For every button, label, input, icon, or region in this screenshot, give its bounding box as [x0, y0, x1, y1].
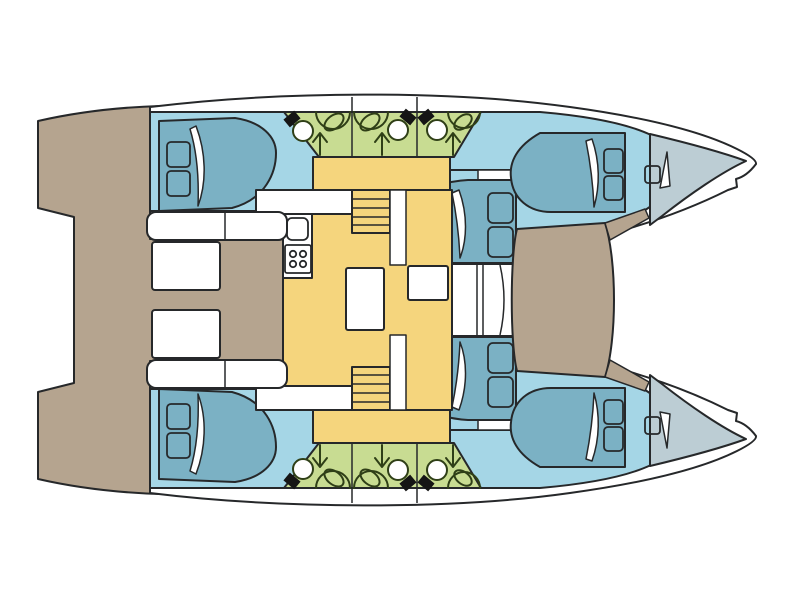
stairs-top-box [352, 190, 390, 233]
stairs-bottom [352, 367, 390, 410]
forward-bulkhead-box [452, 264, 517, 336]
saloon-floor-neck-bottom [313, 410, 450, 443]
cockpit-bench-top [147, 212, 287, 240]
toilet-icon [293, 121, 313, 141]
foredeck-pad [512, 223, 614, 377]
galley-counter-bottom [256, 386, 357, 410]
toilet-icon [388, 120, 408, 140]
nav-seat [408, 266, 448, 300]
toilet-icon [427, 120, 447, 140]
saloon-floor-neck-top [313, 157, 450, 190]
stairs-top [352, 190, 390, 233]
forward-cabin [511, 133, 625, 212]
partition-strip-bottom [390, 335, 406, 410]
cockpit-table-bottom [152, 310, 220, 358]
galley-counter-top [256, 190, 357, 214]
saloon-table [346, 268, 384, 330]
catamaran-floorplan [0, 0, 800, 600]
cockpit-table-top [152, 242, 220, 290]
partition-strip-top [390, 190, 406, 265]
forward-bulkhead [452, 264, 517, 336]
stairs-bottom-box [352, 367, 390, 410]
cockpit-bench-bottom [147, 360, 287, 388]
boat-floorplan-page [0, 0, 800, 600]
